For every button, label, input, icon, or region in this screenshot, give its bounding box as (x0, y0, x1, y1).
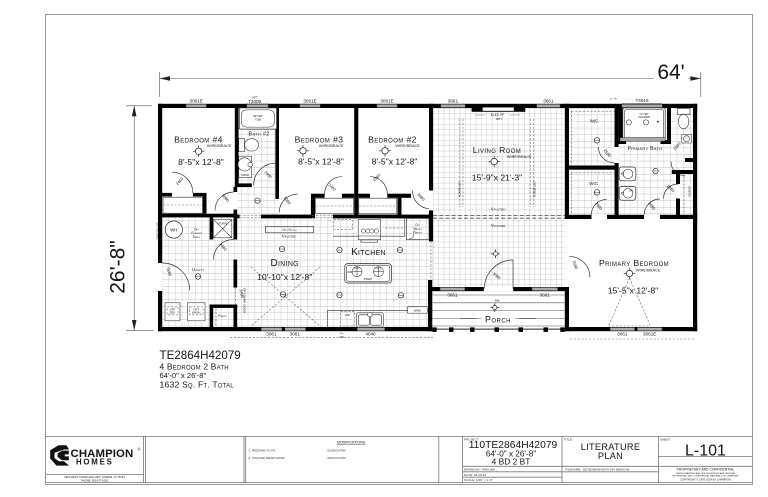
svg-text:3661: 3661 (540, 292, 551, 297)
svg-text:4 BD 2 BT: 4 BD 2 BT (492, 456, 531, 466)
svg-text:5460M: 5460M (241, 173, 249, 177)
svg-text:36B: 36B (495, 299, 500, 303)
svg-text:2460: 2460 (327, 182, 337, 192)
svg-text:15'-5"x 12'-8": 15'-5"x 12'-8" (608, 285, 658, 295)
svg-text:T3008: T3008 (248, 99, 261, 104)
svg-text:WIC: WIC (589, 181, 598, 186)
svg-text:3661: 3661 (447, 292, 458, 297)
svg-text:TE2864H42079: TE2864H42079 (160, 349, 241, 362)
svg-text:2. CHANGE REAR DOOR: 2. CHANGE REAR DOOR (249, 456, 286, 460)
svg-text:8'-5"x 12'-8": 8'-5"x 12'-8" (372, 156, 418, 166)
svg-text:Opt Hutch: Opt Hutch (282, 228, 297, 232)
svg-text:MODIFICATIONS: MODIFICATIONS (337, 440, 366, 444)
svg-text:SHOWER: SHOWER (638, 115, 650, 119)
svg-text:Primary Bedroom: Primary Bedroom (599, 258, 669, 268)
svg-text:5: 5 (610, 98, 612, 101)
svg-text:15'-9"x 21'-3": 15'-9"x 21'-3" (472, 172, 522, 182)
svg-text:8'-5"x 12'-8": 8'-5"x 12'-8" (298, 156, 344, 166)
svg-text:06/27/24 RW: 06/27/24 RW (328, 456, 346, 460)
svg-text:PHONE: 903-677-0150: PHONE: 903-677-0150 (81, 479, 108, 483)
svg-text:OPT BARN DOOR: OPT BARN DOOR (243, 288, 247, 314)
svg-text:Bath #2: Bath #2 (249, 131, 270, 137)
svg-text:10'-10"x 12'-8": 10'-10"x 12'-8" (257, 272, 312, 282)
svg-text:◦+◦: ◦+◦ (613, 97, 618, 101)
svg-text:3080: 3080 (283, 195, 293, 206)
svg-text:Vaulted: Vaulted (282, 234, 297, 239)
svg-text:UNR: UNR (347, 271, 352, 274)
svg-text:PROPRIETARY AND CONFIDENTIAL: PROPRIETARY AND CONFIDENTIAL (677, 468, 735, 472)
svg-text:PLAN: PLAN (598, 451, 623, 461)
svg-text:OPT: OPT (354, 266, 360, 270)
svg-text:WH: WH (170, 227, 177, 232)
svg-text:DW: DW (345, 313, 350, 317)
svg-text:COPYRIGHT © LATE-2024 BY CHAMP: COPYRIGHT © LATE-2024 BY CHAMPION (680, 478, 731, 482)
svg-text:WASH: WASH (192, 311, 200, 315)
svg-text:Pantry: Pantry (413, 230, 423, 234)
svg-text:1. REDRAW TO P3: 1. REDRAW TO P3 (249, 448, 276, 452)
svg-text:8'-5"x 12'-8": 8'-5"x 12'-8" (178, 157, 224, 167)
svg-text:3061E: 3061E (303, 99, 316, 104)
svg-text:3061E: 3061E (643, 331, 656, 336)
svg-text:WIRE/BRACE: WIRE/BRACE (207, 143, 232, 148)
svg-text:Porch: Porch (485, 314, 511, 324)
svg-text:®: ® (138, 446, 141, 451)
svg-text:LINENS: LINENS (688, 186, 692, 197)
svg-text:64': 64' (657, 61, 684, 84)
svg-text:2080: 2080 (572, 260, 580, 271)
svg-text:OPT BENCH: OPT BENCH (533, 182, 537, 198)
svg-text:1981 WEST CORSICANA HWY. ATHE: 1981 WEST CORSICANA HWY. ATHENS, TX 7575… (64, 475, 125, 479)
svg-text:DRY: DRY (170, 311, 176, 315)
svg-text:3661: 3661 (543, 99, 554, 104)
svg-text:L-101: L-101 (685, 443, 726, 460)
svg-text:DATE: 02-29-24: DATE: 02-29-24 (464, 473, 486, 477)
svg-text:OPT: OPT (252, 95, 258, 99)
svg-text:3061E: 3061E (190, 99, 203, 104)
svg-text:FURN: FURN (218, 221, 226, 225)
svg-text:1632 Sq. Ft. Total: 1632 Sq. Ft. Total (160, 379, 235, 389)
svg-text:FILENAME: 110TE2864H42079-294: FILENAME: 110TE2864H42079-294 NEWCAB (565, 467, 629, 471)
svg-text:OPT: OPT (376, 266, 382, 270)
svg-text:THESE DRAWINGS AND SPECIFICATI: THESE DRAWINGS AND SPECIFICATIONS ARE OR… (676, 472, 736, 475)
svg-text:Pantry: Pantry (218, 314, 228, 318)
svg-text:Dining: Dining (270, 258, 298, 269)
svg-text:Utility: Utility (192, 267, 204, 272)
svg-text:TUB: TUB (255, 117, 261, 121)
svg-text:Space: Space (193, 235, 201, 239)
svg-text:2460: 2460 (175, 176, 185, 187)
svg-text:WINE: WINE (414, 308, 421, 312)
svg-text:Vaulted: Vaulted (491, 206, 506, 211)
svg-text:3080: 3080 (416, 192, 426, 203)
svg-text:WIRE/BRACE: WIRE/BRACE (636, 268, 661, 273)
svg-text:WIC: WIC (590, 119, 599, 124)
svg-text:Kitchen: Kitchen (351, 247, 386, 258)
svg-text:T4615: T4615 (635, 98, 648, 103)
svg-text:Vaulted: Vaulted (491, 223, 506, 228)
svg-text:OPT A/C DISC: OPT A/C DISC (156, 222, 160, 240)
svg-text:SHEET:: SHEET: (660, 438, 671, 442)
svg-text:PREP: PREP (364, 277, 372, 281)
svg-text:3061: 3061 (266, 332, 277, 337)
svg-text:WIRE/BRACE: WIRE/BRACE (319, 143, 344, 148)
svg-text:HOMES: HOMES (76, 457, 114, 466)
svg-text:TITLE:: TITLE: (564, 438, 573, 442)
svg-text:3061: 3061 (290, 332, 301, 337)
svg-text:Primary Bath: Primary Bath (628, 146, 663, 152)
svg-text:4040: 4040 (365, 332, 376, 337)
svg-text:OPT: OPT (496, 117, 502, 121)
svg-text:3061E: 3061E (380, 99, 393, 104)
svg-text:3061: 3061 (617, 331, 628, 336)
svg-text:OPT BENCH: OPT BENCH (458, 182, 462, 198)
svg-text:PROPRIETARY AND CONFIDENTIAL M: PROPRIETARY AND CONFIDENTIAL MATERIALS O… (672, 475, 739, 478)
svg-text:26'-8": 26'-8" (107, 240, 130, 294)
svg-text:DRAWN BY: RW/LHW: DRAWN BY: RW/LHW (464, 467, 495, 471)
svg-text:WIRE/BRACE: WIRE/BRACE (395, 143, 420, 148)
svg-text:2460: 2460 (372, 172, 382, 182)
svg-text:3080: 3080 (221, 193, 231, 204)
svg-text:02/29/24 RW: 02/29/24 RW (328, 448, 346, 452)
svg-text:SCALE: 3/16" = 1'-0": SCALE: 3/16" = 1'-0" (464, 478, 493, 482)
svg-text:3661: 3661 (448, 99, 459, 104)
svg-text:WIRE/BRACE: WIRE/BRACE (507, 154, 532, 159)
svg-text:DR: DR (629, 188, 633, 192)
